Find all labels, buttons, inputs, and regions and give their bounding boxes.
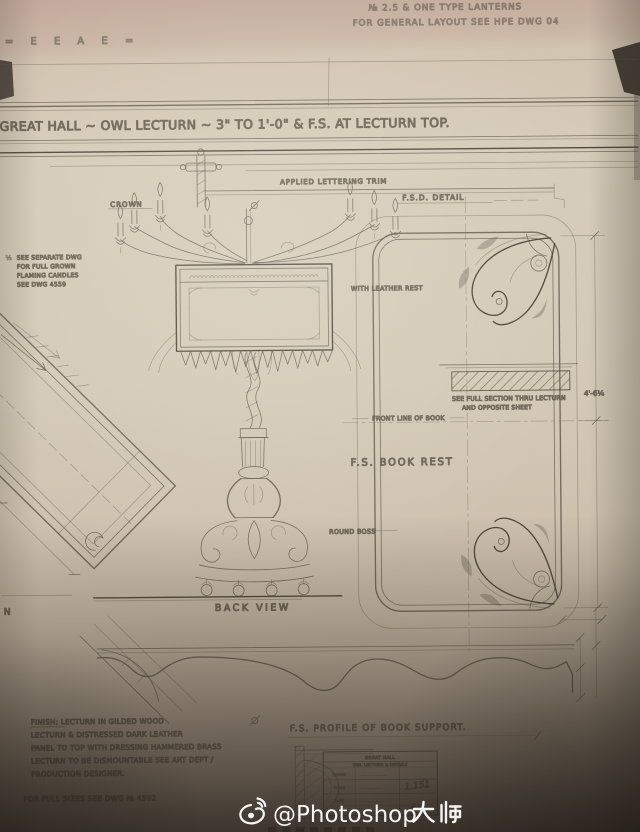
hanzi-shi-glyph (442, 802, 461, 823)
drawing-sheet: = E E A E = № 2.5 & ONE TYPE LANTERNS FO… (0, 0, 640, 832)
photo-of-drawing: = E E A E = № 2.5 & ONE TYPE LANTERNS FO… (0, 0, 640, 832)
weibo-icon (240, 799, 265, 824)
watermark-handle: @Photoshop (273, 802, 417, 828)
cropped-watermark-remnant (268, 827, 376, 832)
photo-grain (0, 0, 640, 832)
